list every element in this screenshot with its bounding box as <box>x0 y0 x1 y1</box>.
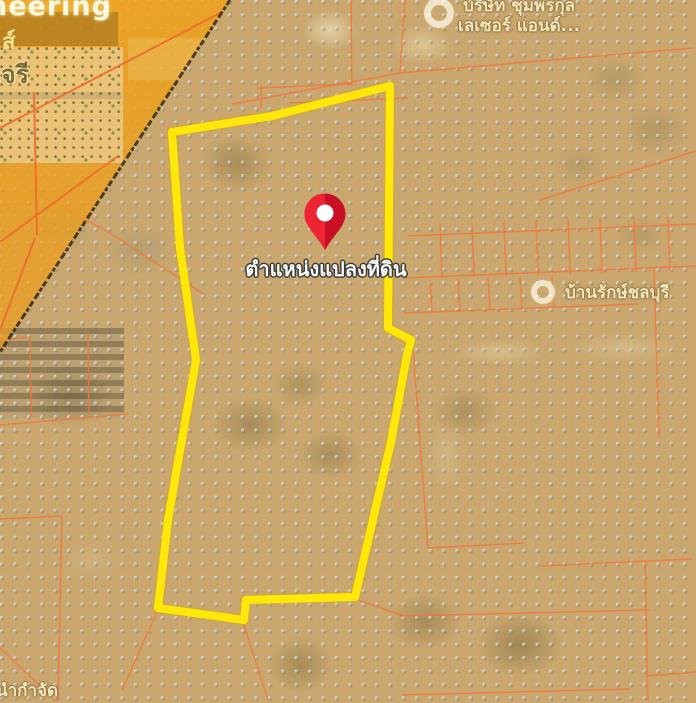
parcel-location-label: ตำแหน่งแปลงที่ดิน <box>215 253 437 285</box>
pin-layer <box>0 0 696 703</box>
satellite-map-view[interactable]: neering ส์ อจรี บริษัท ชุมพรกุล เลเซอร์ … <box>0 0 696 703</box>
location-pin-icon[interactable] <box>305 193 346 250</box>
pin-hole <box>317 205 334 222</box>
